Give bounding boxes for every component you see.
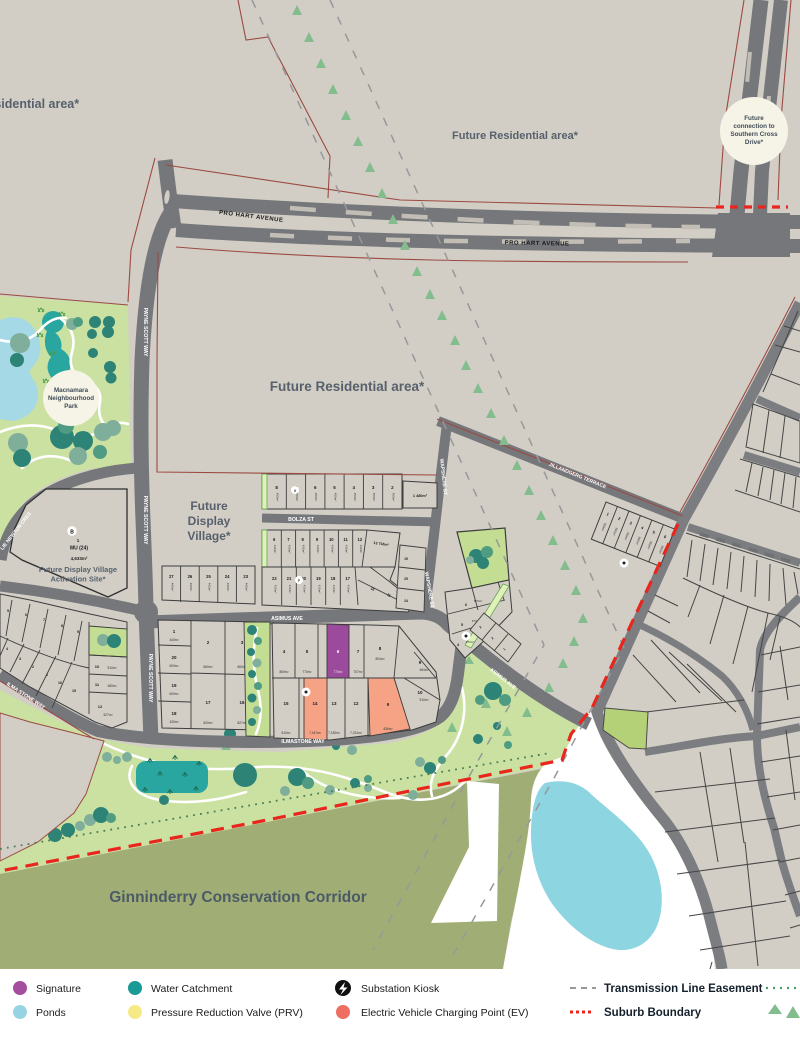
svg-text:Ponds: Ponds [36, 1007, 66, 1019]
svg-text:707m²: 707m² [353, 670, 362, 674]
svg-text:19: 19 [171, 683, 177, 688]
svg-text:3: 3 [19, 657, 21, 661]
svg-text:7: 7 [43, 618, 45, 622]
svg-text:Village*: Village* [187, 529, 230, 543]
svg-text:Park: Park [64, 403, 78, 410]
svg-text:Transmission Line Easement: Transmission Line Easement [604, 983, 763, 995]
svg-text:510m²: 510m² [107, 666, 116, 670]
svg-text:B: B [70, 530, 74, 536]
svg-text:Macnamara: Macnamara [54, 387, 89, 394]
svg-text:connection to: connection to [733, 123, 774, 130]
svg-text:10: 10 [95, 664, 100, 669]
svg-text:410m²: 410m² [303, 585, 307, 594]
svg-text:410m²: 410m² [288, 585, 292, 594]
svg-text:9: 9 [77, 630, 79, 634]
svg-text:5: 5 [7, 609, 9, 613]
svg-text:450m²: 450m² [314, 493, 318, 502]
svg-text:410m²: 410m² [332, 585, 336, 594]
svg-text:410m²: 410m² [317, 585, 321, 594]
svg-text:21: 21 [287, 576, 292, 581]
svg-text:Southern Cross: Southern Cross [730, 131, 778, 138]
svg-text:13: 13 [331, 701, 337, 706]
svg-text:Neighbourhood: Neighbourhood [48, 395, 94, 402]
svg-text:430m²: 430m² [302, 545, 306, 554]
svg-text:15: 15 [283, 701, 289, 706]
svg-text:430m²: 430m² [273, 545, 277, 554]
svg-text:460m²: 460m² [189, 583, 193, 592]
svg-text:6: 6 [25, 613, 27, 617]
svg-text:460m²: 460m² [226, 583, 230, 592]
svg-text:804m²: 804m² [375, 657, 384, 661]
svg-text:25: 25 [404, 577, 408, 581]
svg-text:836m²: 836m² [383, 727, 392, 731]
svg-text:Signature: Signature [36, 983, 81, 995]
svg-text:4,633m²: 4,633m² [71, 556, 88, 561]
svg-text:450m²: 450m² [276, 493, 280, 502]
svg-text:P: P [298, 578, 301, 583]
svg-text:Future Residential area*: Future Residential area* [452, 130, 579, 142]
svg-text:2: 2 [32, 665, 34, 669]
svg-text:PAYNE SCOTT WAY: PAYNE SCOTT WAY [142, 308, 148, 357]
svg-text:Future Display Village: Future Display Village [39, 565, 117, 574]
svg-text:460m²: 460m² [208, 583, 212, 592]
svg-text:15: 15 [404, 557, 408, 561]
svg-text:670m²: 670m² [474, 599, 483, 603]
svg-text:527m²: 527m² [103, 713, 112, 717]
svg-text:17: 17 [205, 700, 211, 705]
svg-text:BOLZA ST: BOLZA ST [288, 517, 315, 523]
svg-text:12: 12 [358, 537, 363, 542]
svg-text:16: 16 [58, 681, 62, 685]
svg-text:827m²: 827m² [237, 721, 246, 725]
svg-text:430m²: 430m² [316, 545, 320, 554]
svg-text:Drive*: Drive* [745, 139, 764, 146]
svg-text:PRO HART AVENUE: PRO HART AVENUE [505, 240, 570, 247]
svg-text:430m²: 430m² [169, 720, 178, 724]
svg-text:Substation Kiosk: Substation Kiosk [361, 983, 440, 995]
svg-text:6: 6 [465, 603, 467, 607]
svg-text:450m²: 450m² [295, 493, 299, 502]
svg-text:Ginninderry Conservation Corri: Ginninderry Conservation Corridor [109, 889, 367, 906]
svg-text:430m²: 430m² [345, 545, 349, 554]
svg-text:Activation Site*: Activation Site* [50, 575, 105, 584]
svg-text:810m²: 810m² [281, 731, 290, 735]
svg-text:450m²: 450m² [334, 493, 338, 502]
svg-text:7,447m²: 7,447m² [309, 731, 321, 735]
svg-text:10: 10 [417, 690, 423, 695]
svg-text:Future: Future [744, 115, 764, 122]
svg-text:Future Residential area*: Future Residential area* [270, 379, 425, 394]
svg-text:7,150m²: 7,150m² [328, 731, 340, 735]
svg-text:24: 24 [225, 574, 230, 579]
svg-text:14: 14 [312, 701, 318, 706]
svg-text:910m²: 910m² [419, 698, 428, 702]
svg-text:8: 8 [61, 624, 63, 628]
svg-text:25: 25 [206, 574, 211, 579]
svg-text:770m²: 770m² [333, 670, 342, 674]
svg-text:Suburb Boundary: Suburb Boundary [604, 1007, 702, 1019]
svg-text:MU (24): MU (24) [70, 546, 88, 552]
svg-text:860m²: 860m² [279, 670, 288, 674]
svg-text:15: 15 [72, 689, 76, 693]
svg-text:12: 12 [353, 701, 359, 706]
svg-text:Pressure Reduction Valve (PRV): Pressure Reduction Valve (PRV) [151, 1007, 303, 1019]
svg-text:Electric Vehicle Charging Poin: Electric Vehicle Charging Point (EV) [361, 1007, 529, 1019]
svg-text:22: 22 [272, 576, 277, 581]
svg-text:Water Catchment: Water Catchment [151, 983, 232, 995]
svg-text:24: 24 [404, 599, 408, 603]
svg-text:450m²: 450m² [391, 493, 395, 502]
svg-text:ASIMUS AVE: ASIMUS AVE [271, 616, 303, 622]
svg-text:450m²: 450m² [372, 493, 376, 502]
svg-text:ILMASTONE WAY: ILMASTONE WAY [281, 739, 325, 745]
svg-text:600m²: 600m² [169, 692, 178, 696]
svg-text:460m²: 460m² [170, 583, 174, 592]
svg-text:410m²: 410m² [273, 585, 277, 594]
svg-text:23: 23 [243, 574, 248, 579]
svg-text:5: 5 [461, 623, 463, 627]
svg-text:Future: Future [190, 499, 228, 513]
svg-text:10: 10 [329, 537, 334, 542]
svg-text:19: 19 [316, 576, 321, 581]
svg-text:860m²: 860m² [203, 665, 212, 669]
svg-text:440m²: 440m² [169, 638, 178, 642]
svg-text:16: 16 [239, 700, 245, 705]
svg-text:770m²: 770m² [302, 670, 311, 674]
svg-text:12: 12 [98, 704, 103, 709]
svg-text:20: 20 [171, 655, 177, 660]
svg-text:1 480m²: 1 480m² [413, 494, 428, 498]
svg-text:460m²: 460m² [245, 583, 249, 592]
svg-text:1: 1 [46, 673, 48, 677]
svg-text:17: 17 [345, 576, 350, 581]
svg-text:Future Residential area*: Future Residential area* [0, 97, 79, 111]
svg-text:430m²: 430m² [330, 545, 334, 554]
svg-text:820m²: 820m² [203, 721, 212, 725]
svg-text:PAYNE SCOTT WAY: PAYNE SCOTT WAY [142, 496, 148, 545]
svg-text:26: 26 [188, 574, 193, 579]
svg-text:480m²: 480m² [107, 684, 116, 688]
svg-text:11: 11 [343, 537, 348, 542]
svg-text:600m²: 600m² [169, 664, 178, 668]
svg-text:450m²: 450m² [353, 493, 357, 502]
svg-text:18: 18 [331, 576, 336, 581]
svg-text:670m²: 670m² [466, 640, 475, 644]
svg-text:18: 18 [171, 711, 177, 716]
svg-text:27: 27 [169, 574, 174, 579]
svg-text:PAYNE SCOTT WAY: PAYNE SCOTT WAY [147, 654, 153, 703]
svg-text:484m²: 484m² [419, 668, 428, 672]
svg-text:Display: Display [188, 514, 231, 528]
svg-text:430m²: 430m² [287, 545, 291, 554]
svg-text:410m²: 410m² [347, 585, 351, 594]
svg-text:4: 4 [6, 647, 8, 651]
svg-text:430m²: 430m² [359, 545, 363, 554]
svg-text:7,331m²: 7,331m² [350, 731, 362, 735]
